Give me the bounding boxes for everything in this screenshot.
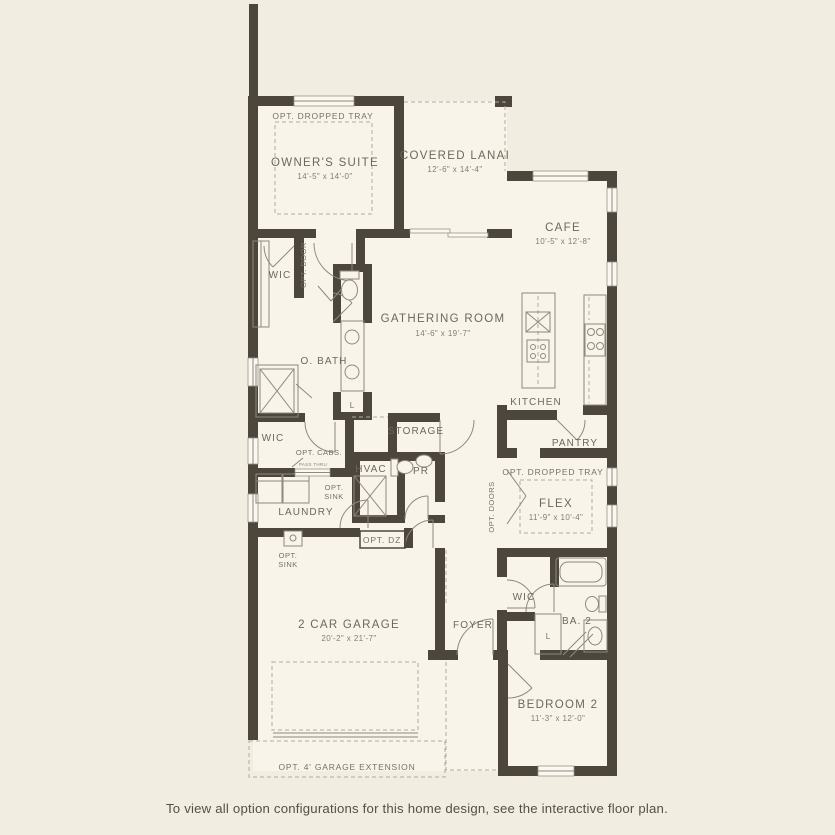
pass-thru-label: PASS THRU bbox=[299, 462, 327, 467]
flex-dims: 11'-9" x 10'-4" bbox=[529, 513, 584, 522]
window-owners-suite bbox=[294, 96, 354, 106]
window-cafe-right-1 bbox=[607, 188, 617, 212]
cafe-dims: 10'-5" x 12'-8" bbox=[535, 237, 590, 246]
storage-label: STORAGE bbox=[388, 426, 444, 437]
powder-label: PR bbox=[413, 466, 429, 477]
floor-plan-page: OPT. DROPPED TRAY OWNER'S SUITE 14'-5" x… bbox=[0, 0, 835, 835]
opt-sink-garage-label-2: SINK bbox=[278, 560, 298, 569]
footer-caption: To view all option configurations for th… bbox=[166, 801, 668, 816]
window-cafe-top bbox=[533, 171, 588, 181]
bedroom2-dims: 11'-3" x 12'-0" bbox=[531, 714, 586, 723]
bedroom2-label: BEDROOM 2 bbox=[518, 699, 599, 711]
window-flex-right-2 bbox=[607, 505, 617, 527]
kitchen-range bbox=[585, 324, 605, 356]
flex-label: FLEX bbox=[539, 498, 573, 510]
bath2-toilet bbox=[586, 596, 607, 612]
bath2-label: BA. 2 bbox=[562, 616, 592, 627]
hvac-label: HVAC bbox=[355, 464, 386, 475]
window-wic-left bbox=[248, 438, 258, 464]
floor-plan: OPT. DROPPED TRAY OWNER'S SUITE 14'-5" x… bbox=[0, 0, 835, 835]
owners-suite-dims: 14'-5" x 14'-0" bbox=[297, 172, 352, 181]
gathering-room-label: GATHERING ROOM bbox=[381, 313, 506, 325]
foyer-label: FOYER bbox=[453, 620, 493, 631]
owners-toilet bbox=[340, 271, 359, 300]
linen-owners-label: L bbox=[350, 401, 355, 410]
opt-dropped-tray-owners-label: OPT. DROPPED TRAY bbox=[272, 111, 373, 121]
pass-thru-opening bbox=[295, 469, 330, 476]
opt-sink-laundry-label-1: OPT. bbox=[325, 483, 344, 492]
opt-door-label: OPT. DOOR bbox=[299, 242, 308, 288]
covered-lanai-dims: 12'-6" x 14'-4" bbox=[427, 165, 482, 174]
covered-lanai-label: COVERED LANAI bbox=[400, 150, 510, 162]
gathering-room-dims: 14'-6" x 19'-7" bbox=[415, 329, 470, 338]
opt-dz-label: OPT. DZ bbox=[363, 535, 401, 545]
opt-doors-label: OPT. DOORS bbox=[487, 481, 496, 532]
opt-dropped-tray-flex-label: OPT. DROPPED TRAY bbox=[502, 467, 603, 477]
bed2-wic-label: WIC bbox=[513, 592, 536, 603]
garage-sink bbox=[284, 531, 302, 546]
garage-label: 2 CAR GARAGE bbox=[298, 619, 400, 631]
laundry-label: LAUNDRY bbox=[278, 507, 333, 518]
owners-wic-label: WIC bbox=[269, 270, 292, 281]
opt-sink-laundry-label-2: SINK bbox=[324, 492, 344, 501]
opt-cabs-label: OPT. CABS. bbox=[296, 448, 342, 457]
garage-dims: 20'-2" x 21'-7" bbox=[321, 634, 376, 643]
pantry-label: PANTRY bbox=[552, 438, 598, 449]
window-cafe-right-2 bbox=[607, 262, 617, 286]
kitchen-label: KITCHEN bbox=[510, 397, 562, 408]
owners-suite-label: OWNER'S SUITE bbox=[271, 157, 379, 169]
linen-bed2-label: L bbox=[546, 632, 551, 641]
window-bedroom2 bbox=[538, 766, 574, 776]
owners-bath-label: O. BATH bbox=[301, 356, 348, 367]
cafe-label: CAFE bbox=[545, 222, 581, 234]
hall-wic-label: WIC bbox=[262, 433, 285, 444]
window-flex-right-1 bbox=[607, 468, 617, 486]
opt-sink-garage-label-1: OPT. bbox=[279, 551, 298, 560]
garage-extension-label: OPT. 4' GARAGE EXTENSION bbox=[278, 762, 415, 772]
